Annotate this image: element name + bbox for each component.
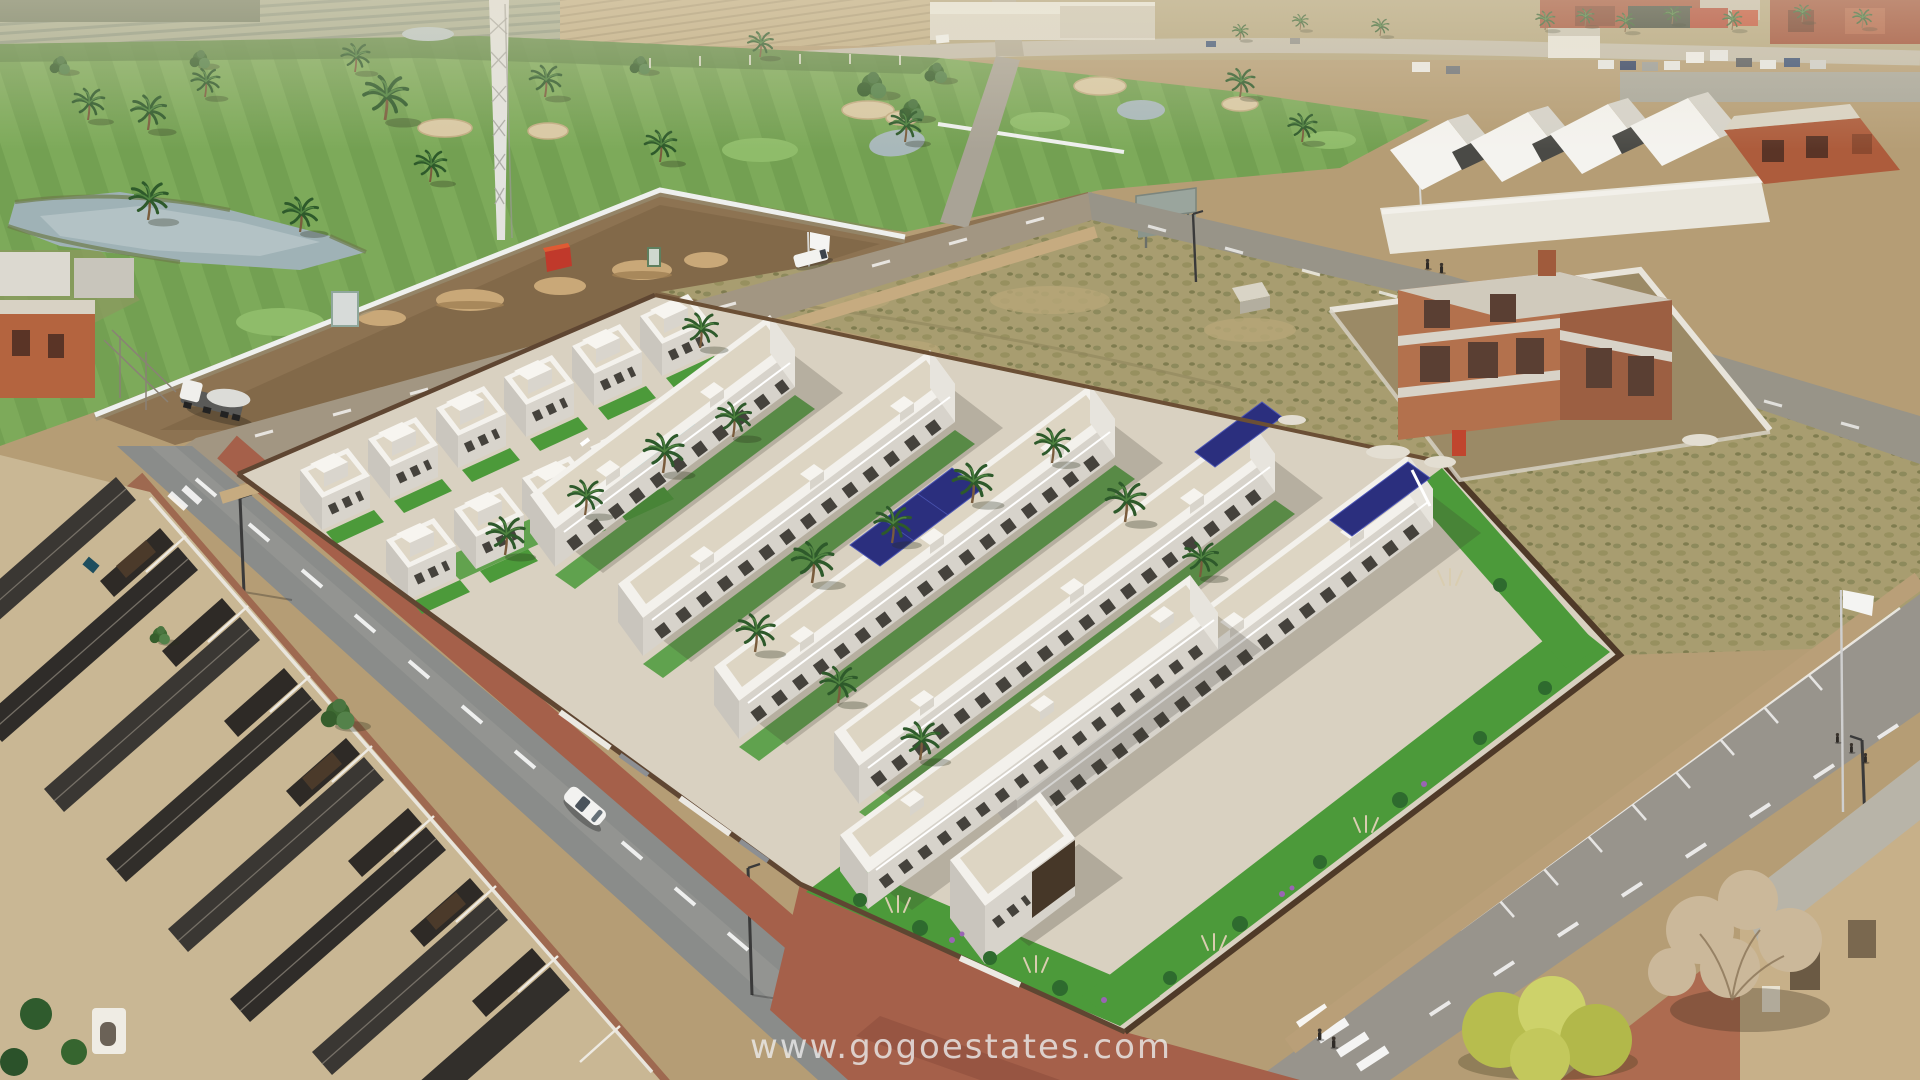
chimney-brick — [1538, 250, 1556, 276]
silo — [1452, 430, 1466, 456]
scene-canvas: www.gogoestates.com — [0, 0, 1920, 1080]
watermark-text: www.gogoestates.com — [750, 1027, 1172, 1067]
site-cabin — [332, 292, 358, 326]
haze-overlay — [0, 0, 1920, 150]
old-town-white-arch — [92, 1008, 126, 1054]
aerial-render-image: www.gogoestates.com — [0, 0, 1920, 1080]
portaloo — [648, 248, 660, 266]
